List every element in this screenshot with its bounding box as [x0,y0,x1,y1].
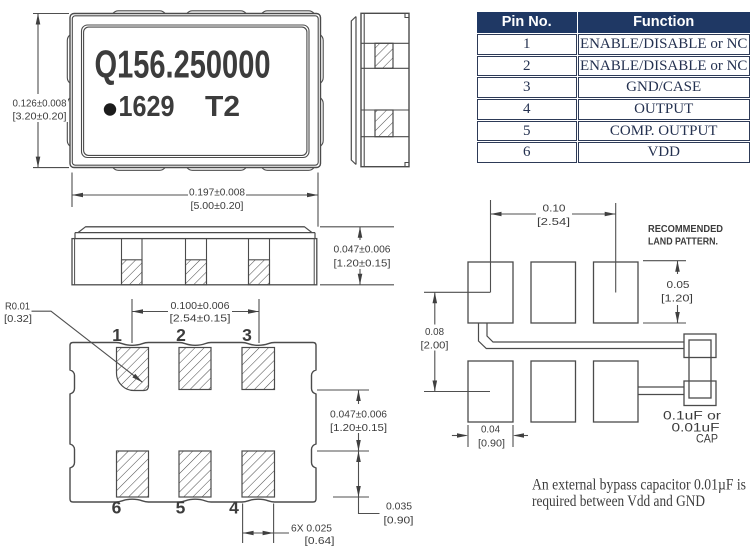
svg-text:[1.20±0.15]: [1.20±0.15] [334,257,391,269]
svg-text:5: 5 [176,498,186,518]
svg-text:0.05: 0.05 [667,279,690,291]
svg-text:0.035: 0.035 [386,501,412,513]
svg-text:[0.32]: [0.32] [4,313,32,325]
svg-text:An external bypass capacitor 0: An external bypass capacitor 0.01µF is [532,477,746,494]
svg-text:0.126±0.008: 0.126±0.008 [13,98,67,110]
svg-text:6X 0.025: 6X 0.025 [291,523,332,535]
svg-text:3: 3 [242,325,252,345]
svg-text:[2.00]: [2.00] [421,340,449,352]
svg-text:required between Vdd and GND: required between Vdd and GND [532,493,705,510]
svg-text:6: 6 [112,498,122,518]
svg-text:1629: 1629 [119,91,175,123]
svg-text:[2.54±0.15]: [2.54±0.15] [170,312,231,324]
svg-text:0.100±0.006: 0.100±0.006 [171,300,230,312]
svg-text:[3.20±0.20]: [3.20±0.20] [13,111,67,123]
svg-text:0.047±0.006: 0.047±0.006 [334,244,391,256]
svg-text:Q156.250000: Q156.250000 [95,44,271,87]
svg-text:0.047±0.006: 0.047±0.006 [330,409,387,421]
svg-text:1: 1 [112,325,122,345]
svg-text:0.04: 0.04 [481,424,500,436]
svg-text:CAP: CAP [696,432,718,446]
svg-text:[1.20]: [1.20] [661,293,693,305]
svg-text:2: 2 [176,325,186,345]
svg-text:[0.64]: [0.64] [305,535,335,547]
svg-text:[2.54]: [2.54] [537,216,570,228]
svg-text:[0.90]: [0.90] [478,438,505,450]
svg-text:RECOMMENDED: RECOMMENDED [648,224,723,235]
svg-text:LAND PATTERN.: LAND PATTERN. [648,237,718,248]
svg-text:4: 4 [229,498,239,518]
svg-text:0.197±0.008: 0.197±0.008 [189,187,245,199]
svg-text:[0.90]: [0.90] [384,515,414,527]
svg-text:R0.01: R0.01 [5,301,30,313]
svg-text:[1.20±0.15]: [1.20±0.15] [330,422,387,434]
svg-text:0.08: 0.08 [425,326,444,338]
svg-text:T2: T2 [205,91,240,123]
svg-text:[5.00±0.20]: [5.00±0.20] [191,200,244,212]
svg-text:0.10: 0.10 [543,203,566,215]
